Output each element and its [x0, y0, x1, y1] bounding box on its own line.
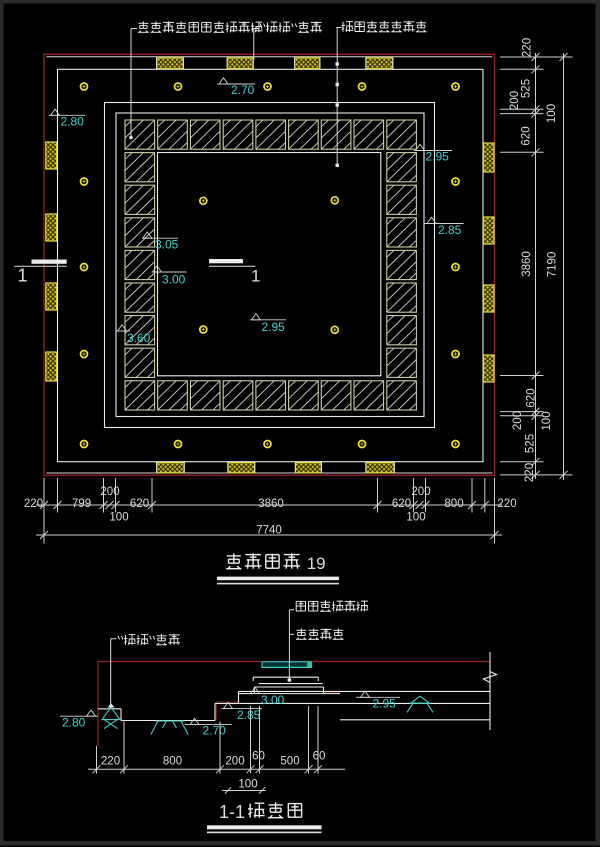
svg-text:2.85: 2.85 [438, 223, 462, 237]
svg-text:2.80: 2.80 [61, 115, 85, 129]
svg-text:799: 799 [72, 498, 91, 510]
svg-text:3860: 3860 [258, 498, 284, 510]
svg-text:2.85: 2.85 [237, 708, 261, 722]
svg-text:2.95: 2.95 [262, 320, 286, 334]
svg-text:2.80: 2.80 [62, 716, 86, 730]
svg-text:200: 200 [512, 411, 524, 430]
svg-text:200: 200 [100, 486, 119, 498]
svg-text:1-1: 1-1 [219, 802, 245, 822]
svg-text:100: 100 [406, 512, 425, 524]
svg-text:3.60: 3.60 [127, 331, 151, 345]
svg-text:220: 220 [522, 38, 534, 57]
svg-text:200: 200 [411, 486, 430, 498]
svg-text:3860: 3860 [521, 251, 533, 277]
svg-text:3.00: 3.00 [162, 273, 186, 287]
svg-text:19: 19 [307, 554, 326, 573]
svg-text:200: 200 [509, 91, 521, 110]
svg-text:100: 100 [109, 512, 128, 524]
svg-text:100: 100 [541, 411, 553, 430]
svg-text:2.70: 2.70 [203, 724, 227, 738]
svg-text:2.70: 2.70 [231, 83, 255, 97]
svg-text:220: 220 [497, 498, 516, 510]
svg-text:220: 220 [24, 498, 43, 510]
svg-text:525: 525 [525, 434, 537, 453]
svg-text:1: 1 [251, 267, 260, 286]
svg-text:3.05: 3.05 [155, 238, 179, 252]
svg-text:2.95: 2.95 [373, 697, 397, 711]
svg-text:7190: 7190 [547, 252, 559, 278]
svg-text:3.00: 3.00 [261, 693, 285, 707]
svg-text:60: 60 [313, 751, 326, 763]
svg-text:620: 620 [521, 126, 533, 145]
svg-text:200: 200 [225, 756, 244, 768]
svg-text:620: 620 [392, 498, 411, 510]
svg-text:800: 800 [444, 498, 463, 510]
svg-text:1: 1 [18, 266, 28, 286]
svg-text:500: 500 [280, 756, 299, 768]
svg-text:525: 525 [521, 79, 533, 98]
svg-text:60: 60 [252, 751, 265, 763]
svg-text:7740: 7740 [256, 525, 282, 537]
svg-text:220: 220 [524, 463, 536, 482]
svg-text:100: 100 [546, 104, 558, 123]
svg-text:620: 620 [130, 498, 149, 510]
svg-text:220: 220 [101, 756, 120, 768]
svg-text:800: 800 [163, 756, 182, 768]
svg-text:2.95: 2.95 [426, 150, 450, 164]
svg-text:620: 620 [526, 388, 538, 407]
svg-text:100: 100 [238, 779, 257, 791]
